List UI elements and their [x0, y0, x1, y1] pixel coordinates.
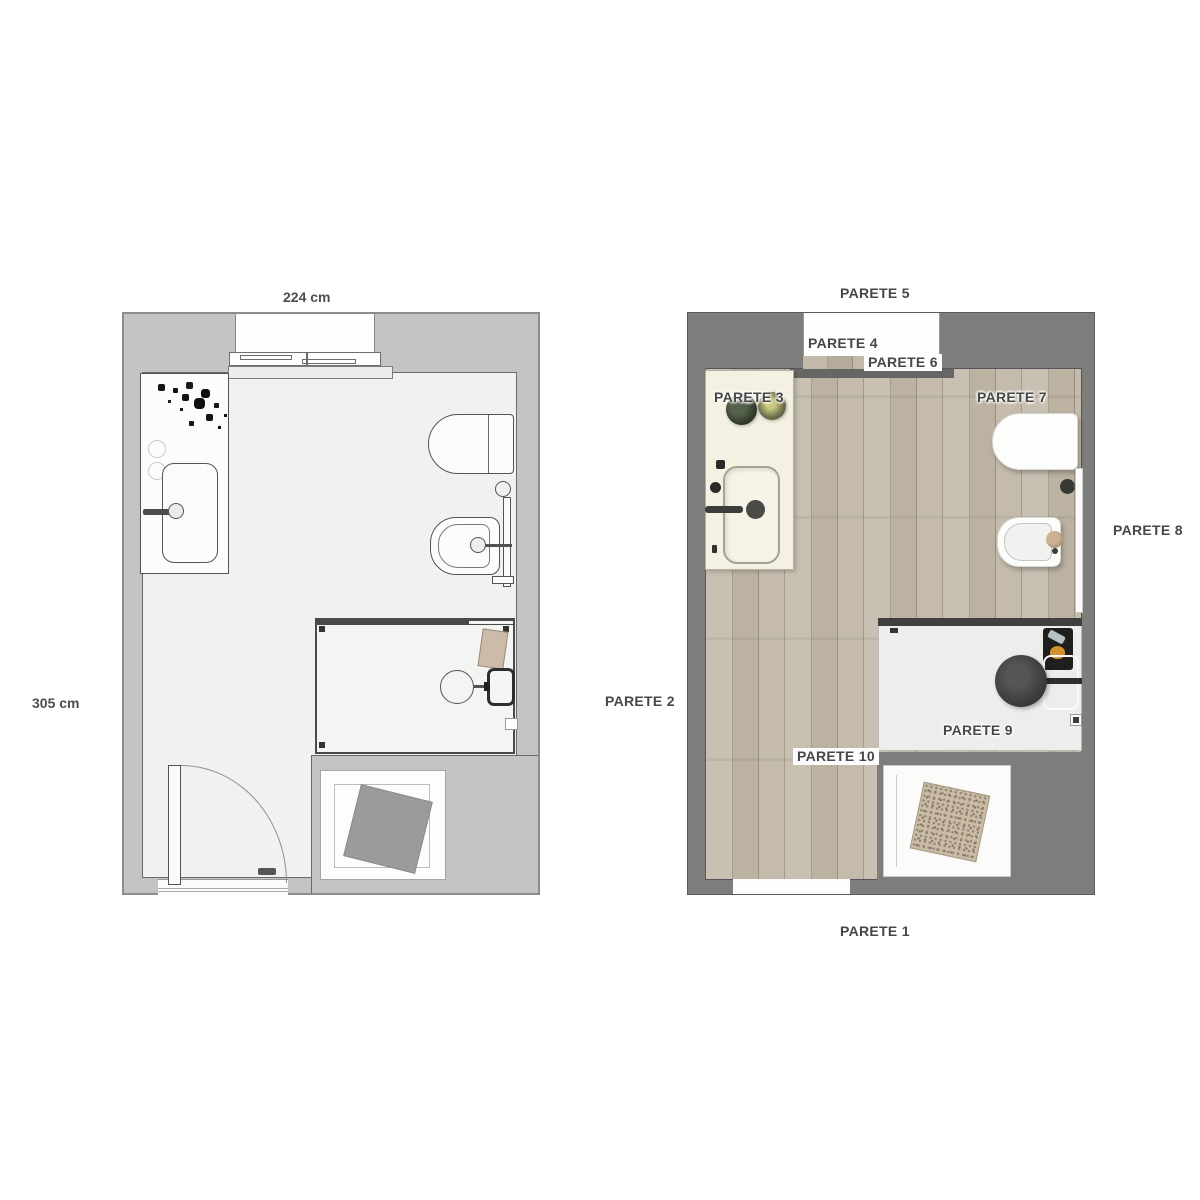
rail-foot — [492, 576, 514, 584]
door-handle — [258, 868, 276, 875]
width-dimension-label: 224 cm — [283, 289, 330, 305]
bidet-basin-rendered — [1004, 523, 1052, 561]
door-leaf — [168, 765, 181, 885]
bidet-speck — [1052, 548, 1058, 554]
shower-stool — [440, 670, 474, 704]
shower-stool-rendered — [995, 655, 1047, 707]
wall-label-parete-7: PARETE 7 — [977, 389, 1047, 405]
rendered-floor-plan: PARETE 5 PARETE 4 PARETE 6 PARETE 3 PARE… — [600, 0, 1200, 1200]
window-pane-left — [240, 355, 292, 360]
grab-rail — [503, 497, 511, 587]
door-opening-rendered — [733, 879, 850, 894]
shower-glass-door — [469, 620, 513, 625]
accessory-dot-1 — [716, 460, 725, 469]
window-pane-right — [302, 359, 356, 364]
window-ledge — [228, 366, 393, 379]
toilet-tank-seam — [488, 415, 489, 473]
toilet-rendered — [992, 413, 1078, 470]
tray-seam — [896, 775, 897, 867]
glass-handle-dot — [890, 628, 898, 633]
towel — [477, 628, 508, 669]
toilet — [428, 414, 514, 474]
notch-tick — [1073, 717, 1079, 723]
rail-knob — [495, 481, 511, 497]
faucet-knob — [168, 503, 184, 519]
shower-hinge-left — [319, 626, 325, 632]
wall-label-parete-2: PARETE 2 — [605, 693, 675, 709]
toiletry-roll-1 — [148, 440, 166, 458]
shower-glass-band-rendered — [878, 618, 1082, 626]
wall-label-parete-4: PARETE 4 — [808, 335, 878, 351]
wall-label-parete-6: PARETE 6 — [864, 354, 942, 371]
shelf-hook — [484, 682, 490, 691]
stool-connector — [1046, 678, 1082, 684]
bidet-faucet-rendered — [1046, 531, 1063, 548]
shower-hinge-bottom — [319, 742, 325, 748]
wall-rail — [1075, 468, 1083, 613]
wall-label-parete-8: PARETE 8 — [1113, 522, 1183, 538]
threshold-line — [158, 888, 288, 892]
towel-bar-notch — [505, 718, 518, 730]
shower-shelf — [487, 668, 515, 706]
wall-label-parete-9: PARETE 9 — [943, 722, 1013, 738]
accessory-dot-2 — [710, 482, 721, 493]
faucet-rendered — [705, 506, 743, 513]
bath-mat — [910, 782, 991, 863]
technical-floor-plan: 224 cm 305 cm — [0, 0, 600, 1200]
wall-label-parete-3: PARETE 3 — [714, 389, 784, 405]
bidet-faucet — [470, 537, 486, 553]
wall-label-parete-5: PARETE 5 — [840, 285, 910, 301]
wall-label-parete-1: PARETE 1 — [840, 923, 910, 939]
accessory-speck — [712, 545, 717, 553]
shower-glass-band — [317, 620, 469, 625]
plant — [158, 384, 165, 391]
faucet-knob-rendered — [746, 500, 765, 519]
wall-label-parete-10: PARETE 10 — [793, 748, 879, 765]
height-dimension-label: 305 cm — [32, 695, 79, 711]
